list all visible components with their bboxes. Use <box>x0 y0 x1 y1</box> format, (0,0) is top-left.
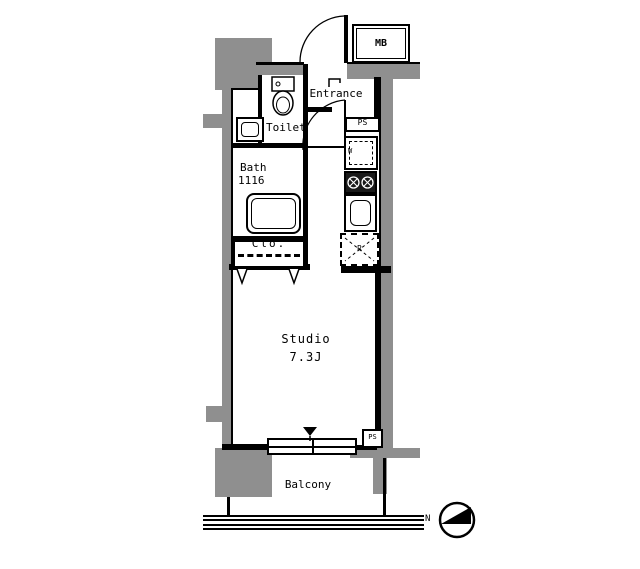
compass-north-arrow <box>441 507 471 524</box>
wall-washbasin-nook-top <box>231 88 258 90</box>
toilet-label: Toilet <box>266 122 306 135</box>
concrete-left-stub-upper <box>203 114 222 128</box>
meter-box: MB <box>352 24 410 63</box>
floor-plan: MB PS W R Clo. PS <box>0 0 640 569</box>
compass-icon <box>440 503 474 537</box>
balcony-left-edge <box>227 497 230 516</box>
balcony-railing-line <box>203 524 424 526</box>
concrete-right-wall <box>379 77 393 448</box>
stove <box>344 171 377 194</box>
concrete-pillar-top-left <box>215 38 272 62</box>
wall-below-fridge <box>341 266 391 273</box>
genkan-step-line <box>306 146 345 148</box>
refrigerator-label: R <box>340 244 379 253</box>
entrance-label: Entrance <box>303 88 369 101</box>
meter-box-label: MB <box>354 26 408 61</box>
wall-bath-right <box>303 148 308 240</box>
balcony-railing-line <box>203 519 424 521</box>
wall-entrance-right <box>374 77 379 118</box>
closet-door-swing-mark <box>237 269 247 283</box>
toilet-bowl <box>273 91 293 115</box>
washbasin <box>236 117 264 142</box>
front-door-leaf <box>344 15 348 63</box>
closet-label: Clo. <box>233 238 305 251</box>
bathtub <box>246 193 301 234</box>
front-door-swing-arc <box>300 16 344 62</box>
concrete-left-stub-lower <box>206 406 222 422</box>
wall-bath-top <box>231 143 308 148</box>
studio-label: Studio <box>247 333 365 347</box>
washing-machine-label: W <box>348 147 352 155</box>
pipe-shaft-lower-label: PS <box>362 433 383 441</box>
entrance-mark-icon <box>329 79 340 87</box>
pipe-shaft-upper-label: PS <box>345 118 380 127</box>
balcony-railing-line <box>203 528 424 530</box>
balcony-label: Balcony <box>258 479 358 492</box>
wall-studio-bottom-left <box>222 444 270 450</box>
concrete-pillar-top-left-lower <box>215 62 258 90</box>
balcony-window <box>267 438 357 455</box>
closet-folding-door-track <box>238 254 300 257</box>
closet-door-swing-mark <box>289 269 299 283</box>
studio-area-label: 7.3J <box>247 351 365 365</box>
wall-hall-top <box>308 107 332 112</box>
compass-north-label: N <box>425 514 430 524</box>
balcony-right-edge <box>383 458 386 516</box>
bath-label: Bath <box>240 162 267 175</box>
balcony-railing-line <box>203 515 424 517</box>
kitchen-sink-counter <box>344 194 377 232</box>
window-center-marker <box>303 427 317 436</box>
toilet-seat <box>277 97 290 113</box>
wall-top-left <box>256 62 304 65</box>
wall-studio-right <box>375 273 379 448</box>
toilet-tank-button <box>276 82 280 86</box>
toilet-tank <box>272 77 294 91</box>
bath-size-label: 1116 <box>238 175 265 188</box>
